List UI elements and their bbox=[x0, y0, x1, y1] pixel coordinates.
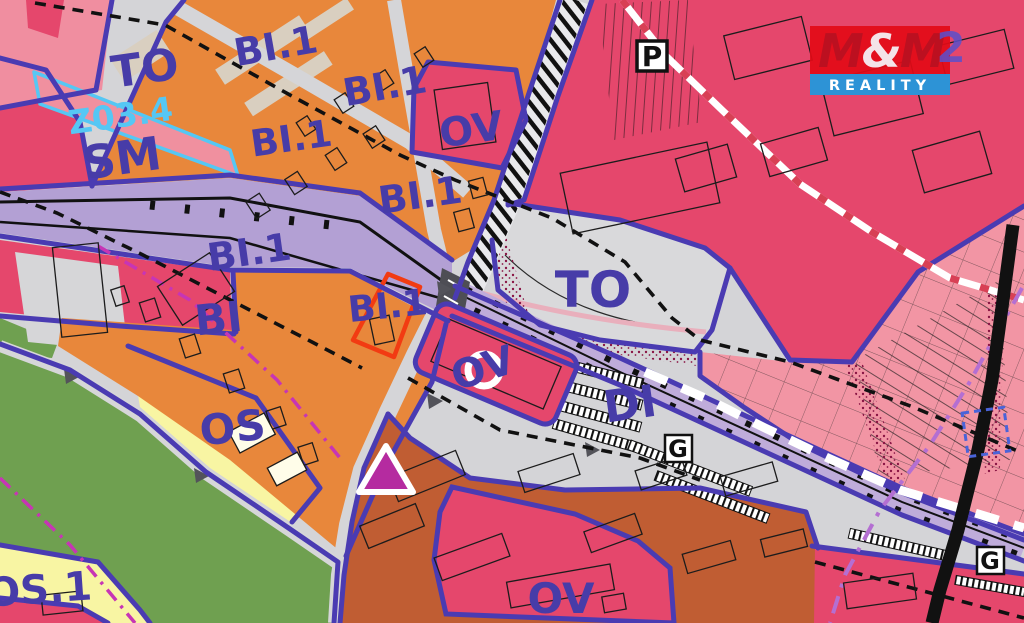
map-viewport: P G G TO BI.1 BI.1 OV BI.1 Z03.4 SM BI.1… bbox=[0, 0, 1024, 623]
zone-label-to-central: TO bbox=[555, 261, 632, 319]
logo-reality-text: REALITY bbox=[829, 78, 931, 94]
zone-label-overlap: 2 bbox=[936, 23, 965, 72]
garage-symbol-2: G bbox=[977, 547, 1004, 575]
zoning-map-canvas: P G G TO BI.1 BI.1 OV BI.1 Z03.4 SM BI.1… bbox=[0, 0, 1024, 623]
garage-symbol-letter: G bbox=[668, 435, 688, 463]
mm-reality-logo: M&M 2 REALITY bbox=[810, 23, 966, 95]
logo-m1: M bbox=[818, 24, 863, 78]
parking-symbol: P bbox=[637, 40, 667, 73]
zone-label-bi1: BI.1 bbox=[346, 282, 429, 331]
zone-label-bi: BI bbox=[192, 292, 245, 346]
garage-symbol-1: G bbox=[665, 435, 692, 463]
zone-label-sm: SM bbox=[79, 126, 165, 190]
logo-mm-text: M&M bbox=[818, 24, 945, 78]
parking-symbol-letter: P bbox=[642, 40, 663, 73]
zone-label-ov-lower: OV bbox=[527, 574, 595, 623]
zone-label-os1: OS.1 bbox=[0, 563, 93, 616]
zone-label-to-upper: TO bbox=[108, 39, 182, 99]
zone-label-di: DI bbox=[600, 376, 659, 434]
logo-ampersand: & bbox=[862, 24, 900, 78]
zone-label-ov-upper: OV bbox=[436, 103, 506, 157]
zone-label-os: OS bbox=[197, 400, 268, 456]
garage-symbol-letter: G bbox=[980, 547, 1000, 575]
